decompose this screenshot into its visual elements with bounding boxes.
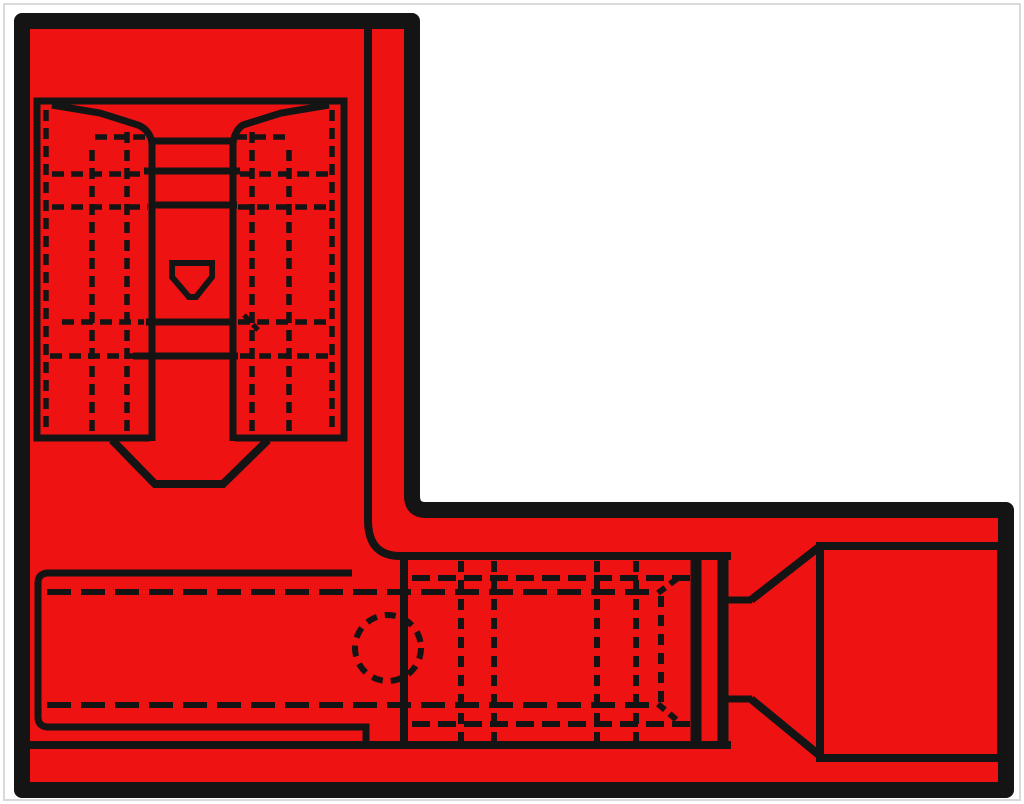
terminal-diagram-stage: [0, 0, 1024, 804]
flag-edge: [368, 17, 731, 556]
terminal-body-outline: [22, 21, 1006, 790]
terminal-diagram: [0, 0, 1024, 804]
